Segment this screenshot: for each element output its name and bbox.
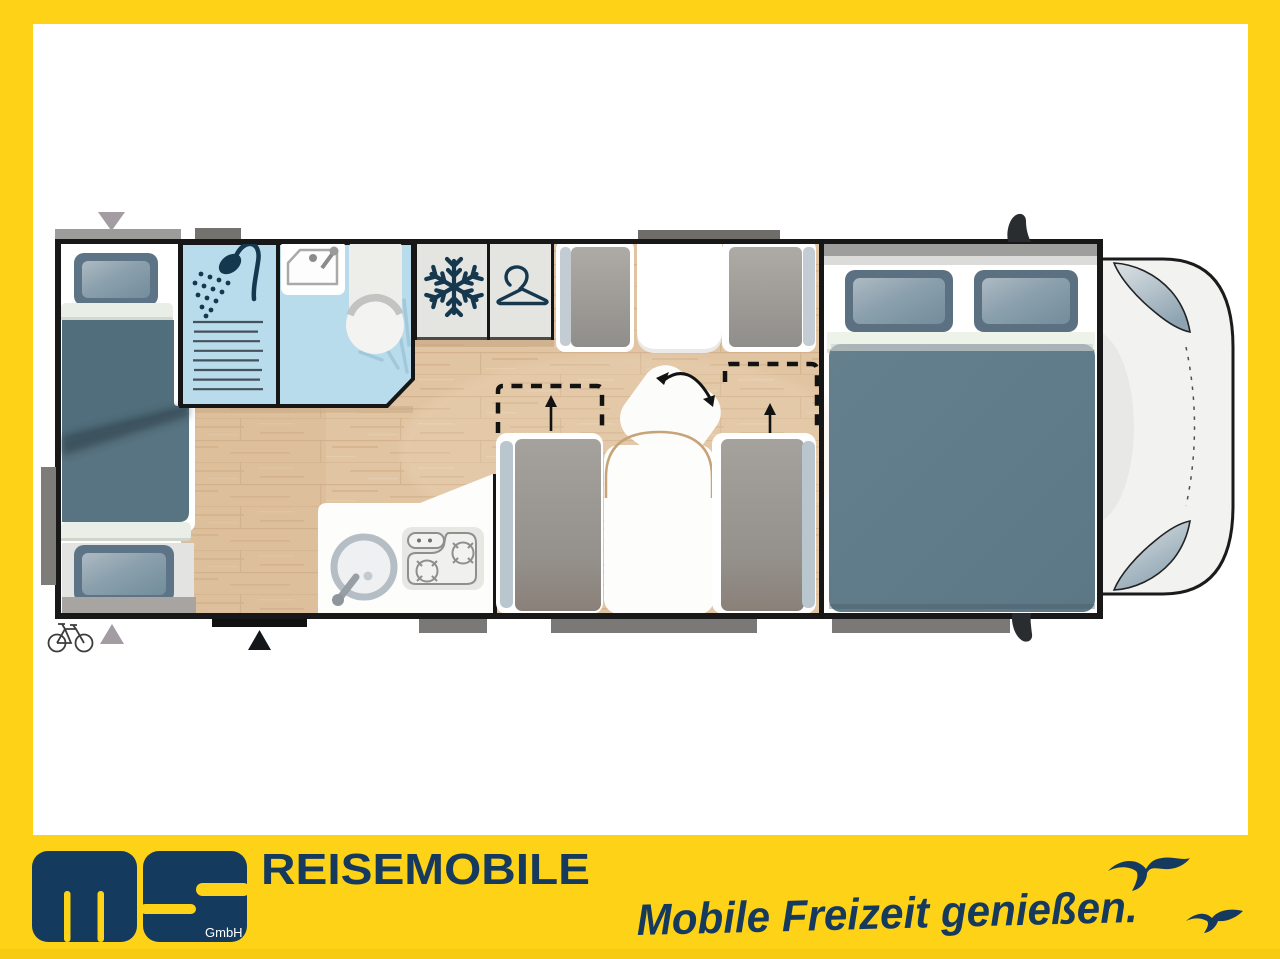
- svg-text:REISEMOBILE: REISEMOBILE: [261, 845, 590, 894]
- svg-text:GmbH: GmbH: [205, 925, 243, 940]
